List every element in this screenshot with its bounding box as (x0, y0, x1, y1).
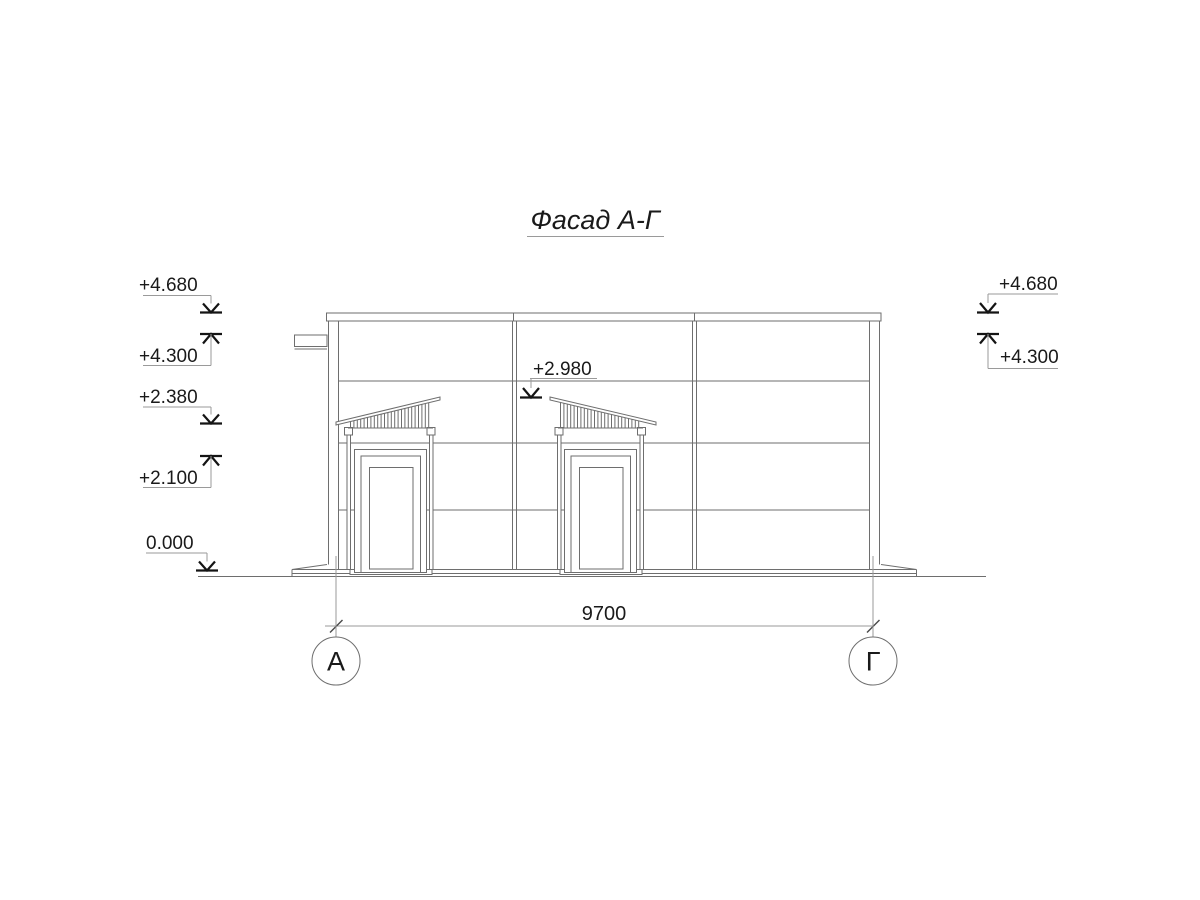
dimension-string: 9700 (325, 603, 880, 633)
canopy-post-cap (345, 428, 353, 436)
axis-label-g: Г (866, 647, 881, 677)
door-left (355, 450, 427, 573)
drawing-title: Фасад А-Г (530, 205, 661, 235)
elevation-value: +4.680 (139, 275, 198, 296)
elevation-value: +4.300 (139, 346, 198, 367)
level-arrow-down-icon (200, 415, 222, 424)
plinth-right-bevel (881, 565, 917, 570)
door-leaf (370, 468, 414, 570)
level-arrow-down-icon (520, 388, 542, 398)
level-arrow-down-icon (200, 304, 222, 313)
canopy-post-cap (427, 428, 435, 436)
drain-spout (295, 335, 328, 347)
elevation-mark: +2.100 (139, 456, 222, 489)
parapet-cap (327, 313, 882, 321)
level-arrow-down-icon (977, 303, 999, 313)
elevation-mark: 0.000 (146, 533, 218, 571)
elevation-value: +4.300 (1000, 347, 1059, 368)
canopy-post-cap (555, 428, 563, 436)
elevation-mark: +4.680 (977, 274, 1058, 313)
dimension-value: 9700 (582, 603, 627, 625)
elevation-value: +2.100 (139, 468, 198, 489)
elevation-mark: +4.680 (139, 275, 222, 313)
axis-label-a: А (327, 647, 345, 677)
elevation-value: 0.000 (146, 533, 194, 554)
elevation-mark: +2.980 (520, 359, 597, 398)
canopy-post-cap (638, 428, 646, 436)
elevation-mark: +2.380 (139, 387, 222, 424)
elevation-value: +4.680 (999, 274, 1058, 295)
facade-drawing-sheet: Фасад А-Г (0, 0, 1200, 900)
level-arrow-down-icon (196, 562, 218, 571)
facade-elevation-svg: Фасад А-Г (0, 0, 1200, 900)
elevation-marks-left: +4.680 +4.300 +2.380 +2.100 0.000 (139, 275, 222, 571)
door-right (565, 450, 637, 573)
canopy-post (347, 435, 351, 570)
elevation-mark: +4.300 (977, 334, 1059, 369)
canopy-roof-plank (550, 397, 656, 425)
elevation-value: +2.380 (139, 387, 198, 408)
building-facade (198, 313, 986, 577)
elevation-marks-right: +4.680 +4.300 (977, 274, 1059, 369)
plinth-left-bevel (292, 565, 327, 570)
canopy-post (640, 435, 644, 570)
title-block: Фасад А-Г (527, 205, 664, 237)
elevation-value: +2.980 (533, 359, 592, 380)
canopy-post (558, 435, 562, 570)
canopy-post (430, 435, 434, 570)
elevation-marks-middle: +2.980 (520, 359, 597, 398)
elevation-mark: +4.300 (139, 334, 222, 367)
door-leaf (580, 468, 624, 570)
